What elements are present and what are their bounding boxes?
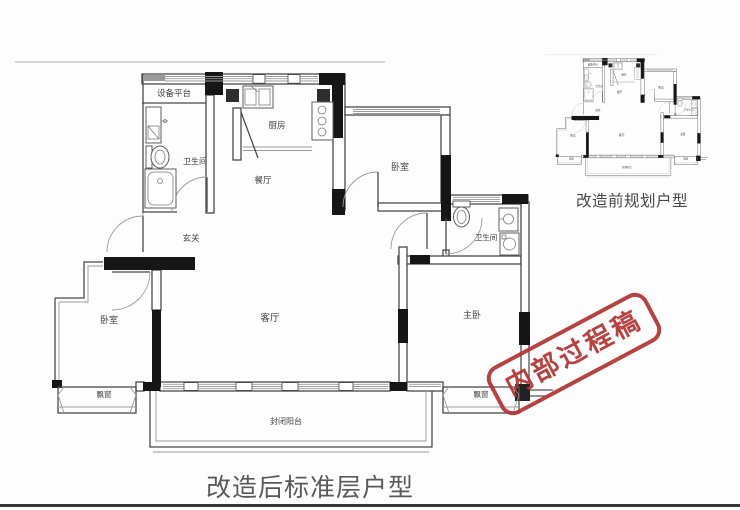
- floorplan-image: 设备平台 卫生间 厨房 餐厅 卧室 玄关 客厅 卧室 卫生间 主卧 飘窗 飘窗 …: [0, 0, 740, 510]
- mini-floor-plan: [545, 55, 708, 177]
- caption-main-plan: 改造后标准层户型: [185, 468, 435, 504]
- bathroom-right-fixtures: [453, 201, 519, 255]
- room-label-dining: 餐厅: [254, 176, 272, 186]
- main-floor-plan: 设备平台 卫生间 厨房 餐厅 卧室 玄关 客厅 卧室 卫生间 主卧 飘窗 飘窗 …: [15, 62, 553, 452]
- room-label-bedroom-left: 卧室: [100, 314, 118, 326]
- room-label-bedroom-top: 卧室: [391, 161, 409, 173]
- room-label-balcony: 封闭阳台: [270, 416, 302, 426]
- structural-walls: [52, 72, 530, 401]
- floorplan-svg: 设备平台 卫生间 厨房 餐厅 卧室 玄关 客厅 卧室 卫生间 主卧 飘窗 飘窗 …: [0, 0, 740, 510]
- bottom-rule: [0, 504, 740, 507]
- bathroom-top-fixtures: [145, 107, 176, 208]
- room-label-bathroom-right: 卫生间: [475, 232, 498, 242]
- room-label-equipment-platform: 设备平台: [157, 88, 191, 99]
- room-label-entry: 玄关: [182, 233, 200, 244]
- room-label-kitchen: 厨房: [268, 120, 285, 131]
- room-label-bay-window-left: 飘窗: [97, 389, 112, 399]
- caption-before-plan: 改造前规划户型: [547, 189, 717, 211]
- platform-cap: [143, 75, 165, 81]
- room-label-living: 客厅: [260, 312, 280, 324]
- room-label-bay-window-right: 飘窗: [474, 389, 489, 399]
- room-label-master-bedroom: 主卧: [463, 309, 481, 321]
- room-label-bathroom-top: 卫生间: [183, 156, 207, 166]
